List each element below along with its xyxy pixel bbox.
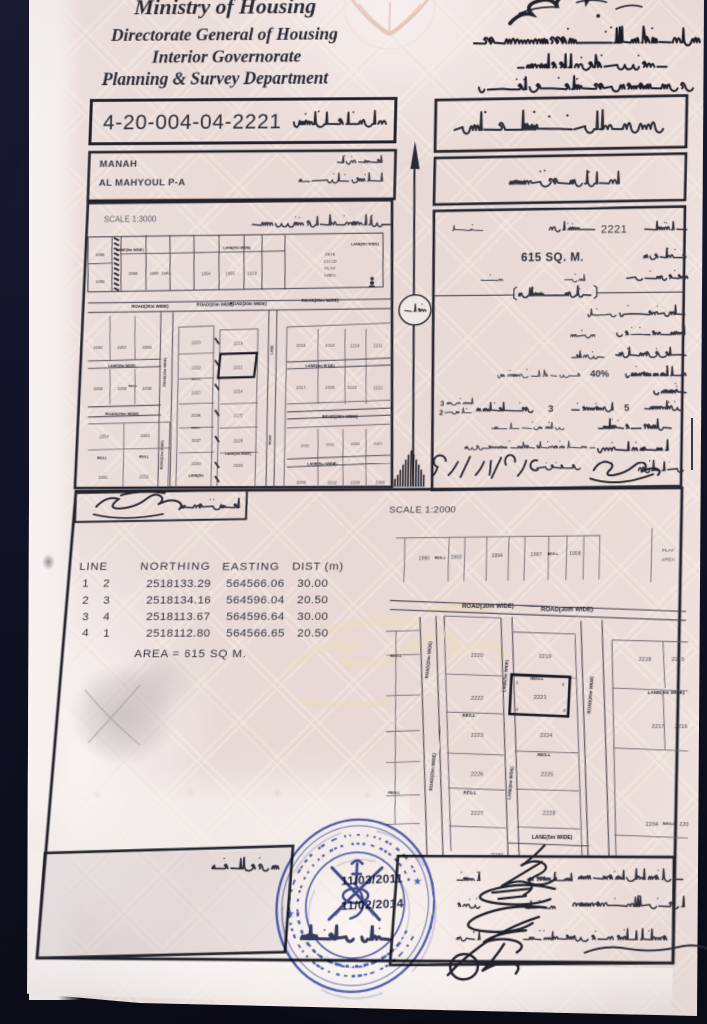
svg-text:2218: 2218 [325,385,335,390]
svg-text:20.50: 20.50 [297,594,329,606]
svg-text:564566.65: 564566.65 [226,627,285,640]
svg-text:2518133.29: 2518133.29 [146,578,212,590]
svg-text:3: 3 [82,611,89,623]
svg-text:1995: 1995 [225,271,235,276]
svg-text:REG.L: REG.L [191,426,200,430]
svg-text:2255: 2255 [142,386,152,391]
svg-text:2051: 2051 [301,443,310,448]
svg-text:1: 1 [82,578,89,590]
svg-text:2203: 2203 [296,480,306,485]
svg-text:SCALE 1:3000: SCALE 1:3000 [104,215,157,224]
svg-text:REG.L: REG.L [139,455,149,459]
svg-text:ROAD: ROAD [268,434,272,445]
svg-text:2213: 2213 [347,385,357,390]
svg-text:4: 4 [103,611,110,623]
svg-text:2220: 2220 [471,653,484,659]
svg-text:2226: 2226 [191,413,201,418]
svg-text:30.00: 30.00 [297,578,329,590]
svg-text:2221: 2221 [233,365,243,370]
svg-text:2230: 2230 [191,461,201,466]
svg-text:REG.L: REG.L [97,456,107,460]
svg-text:2218: 2218 [296,343,306,348]
svg-text:2214: 2214 [350,343,360,348]
svg-text:2211: 2211 [373,343,383,348]
svg-text:LANE(5m WIDE): LANE(5m WIDE) [108,364,136,368]
svg-text:40%: 40% [590,369,610,379]
svg-text:REG.L: REG.L [547,552,558,556]
svg-text:2: 2 [562,682,565,687]
svg-text:LANE(5m WIDE): LANE(5m WIDE) [307,462,337,466]
svg-text:LANE(5m WIDE): LANE(5m WIDE) [223,246,251,250]
svg-text:EASTING: EASTING [222,561,280,573]
svg-text:564596.64: 564596.64 [226,611,285,623]
svg-text:1985: 1985 [95,279,105,284]
svg-text:2252: 2252 [139,474,149,479]
svg-text:PLAY: PLAY [325,266,336,271]
svg-text:REG.L: REG.L [463,790,477,795]
svg-text:2199: 2199 [350,480,360,485]
svg-text:MANAH: MANAH [99,159,137,169]
svg-text:1918: 1918 [247,271,257,276]
svg-text:REG.L: REG.L [462,713,476,718]
svg-text:2224: 2224 [233,389,243,394]
svg-text:2258: 2258 [93,386,103,391]
svg-text:2291: 2291 [326,442,335,447]
svg-text:NORTHING: NORTHING [140,561,212,573]
svg-text:CHILD: CHILD [323,259,336,264]
svg-text:REG.L: REG.L [663,822,677,826]
svg-text:2204: 2204 [646,822,659,829]
svg-text:REG.L: REG.L [537,752,551,757]
svg-text:220: 220 [679,822,689,829]
svg-text:1990: 1990 [149,271,159,276]
svg-text:4: 4 [82,627,89,639]
svg-text:★: ★ [285,907,295,919]
svg-text:AREA: AREA [661,557,674,562]
svg-text:2227: 2227 [191,438,201,443]
svg-text:2518113.67: 2518113.67 [146,611,211,623]
svg-text:3: 3 [563,708,566,713]
svg-text:1990: 1990 [418,556,430,561]
svg-text:4-20-004-04-2221: 4-20-004-04-2221 [103,110,283,134]
svg-text:ROAD(30m WIDE): ROAD(30m WIDE) [541,607,594,613]
svg-text:564566.06: 564566.06 [226,578,285,590]
svg-text:2219: 2219 [539,654,552,660]
svg-text:1986: 1986 [95,252,105,257]
svg-text:2221: 2221 [601,224,628,236]
svg-text:PLAY: PLAY [662,548,674,553]
svg-text:ROAD(20m WIDE): ROAD(20m WIDE) [131,304,169,309]
svg-text:AL MAHYOUL P-A: AL MAHYOUL P-A [99,177,186,188]
svg-text:1: 1 [516,680,519,685]
svg-text:AREA = 615 SQ M.: AREA = 615 SQ M. [134,648,247,661]
svg-text:2226: 2226 [471,772,484,778]
svg-text:2261: 2261 [98,475,108,480]
svg-text:REG.L: REG.L [191,377,200,381]
svg-text:2223: 2223 [471,733,484,739]
svg-text:DIST (m): DIST (m) [292,561,344,573]
svg-text:LANE(5m WIDE): LANE(5m WIDE) [305,364,335,368]
svg-text:564596.04: 564596.04 [226,594,285,606]
svg-text:2: 2 [439,408,443,417]
svg-text:ROAD(12m WIDE): ROAD(12m WIDE) [162,358,167,387]
svg-text:2225: 2225 [541,772,554,778]
svg-text:2175: 2175 [233,413,243,418]
svg-text:Planning & Survey Department: Planning & Survey Department [101,68,330,89]
svg-text:SCALE 1:2000: SCALE 1:2000 [389,505,456,515]
svg-text:2219: 2219 [233,341,243,346]
svg-text:ROAD(20m WIDE): ROAD(20m WIDE) [229,301,267,306]
svg-text:2217: 2217 [296,385,306,390]
svg-text:1994: 1994 [491,553,503,558]
svg-text:2979: 2979 [325,252,335,257]
svg-text:LANE(5m WIDE): LANE(5m WIDE) [116,248,144,252]
svg-text:2253: 2253 [140,433,150,438]
svg-text:2229: 2229 [233,463,243,468]
svg-text:2217: 2217 [652,724,665,730]
svg-text:AREA: AREA [324,273,336,278]
svg-text:1997: 1997 [530,552,542,557]
svg-text:2221: 2221 [533,695,547,701]
svg-text:ROAD(20m WIDE): ROAD(20m WIDE) [301,298,339,303]
svg-text:2228: 2228 [233,438,243,443]
svg-text:REG.L: REG.L [128,384,137,388]
svg-text:3: 3 [103,594,110,606]
svg-text:ROAD(20m WIDE): ROAD(20m WIDE) [424,641,433,679]
svg-text:2215: 2215 [672,657,685,663]
svg-text:★: ★ [413,875,423,887]
svg-text:2197: 2197 [374,441,383,446]
svg-text:2212: 2212 [373,385,383,390]
svg-text:30.00: 30.00 [297,611,329,623]
svg-text:2: 2 [82,594,89,606]
svg-text:1993: 1993 [450,555,462,560]
svg-text:ROAD(20m WIDE): ROAD(20m WIDE) [322,414,358,419]
svg-text:2214: 2214 [325,343,335,348]
svg-text:2259: 2259 [117,386,127,391]
svg-text:2224: 2224 [540,733,553,739]
svg-text:1994: 1994 [201,271,211,276]
svg-text:LANE(5m: LANE(5m [188,474,203,478]
svg-text:2288: 2288 [350,441,360,446]
svg-text:2: 2 [103,578,110,590]
svg-text:2518112.80: 2518112.80 [146,627,211,639]
svg-text:1993: 1993 [161,271,171,276]
svg-text:REG.L: REG.L [390,654,403,658]
svg-text:4: 4 [516,707,519,712]
svg-text:LANE: LANE [270,345,274,355]
svg-text:ROAD(20m WIDE): ROAD(20m WIDE) [105,411,140,416]
svg-text:2518134.16: 2518134.16 [146,594,212,606]
svg-text:2260: 2260 [93,345,103,350]
svg-text:3: 3 [440,399,444,408]
svg-text:2222: 2222 [191,365,201,370]
svg-text:20.50: 20.50 [297,627,329,640]
svg-text:2254: 2254 [99,434,109,439]
svg-text:LANE(5m WIDE): LANE(5m WIDE) [506,766,515,800]
svg-text:2228: 2228 [543,811,556,818]
svg-text:1988: 1988 [128,271,138,276]
svg-text:2220: 2220 [191,340,201,345]
svg-text:2216: 2216 [675,724,688,730]
svg-text:ROAD(30m WIDE): ROAD(30m WIDE) [462,604,514,610]
svg-text:LANE(5m WIDE): LANE(5m WIDE) [532,835,573,841]
svg-text:615 SQ. M.: 615 SQ. M. [521,252,584,265]
svg-text:2222: 2222 [471,696,484,702]
svg-text:2257: 2257 [117,345,127,350]
svg-text:2256: 2256 [142,345,152,350]
svg-text:Interior Governorate: Interior Governorate [151,47,302,67]
svg-text:ROAD(12m WIDE): ROAD(12m WIDE) [159,441,164,470]
svg-text:REG.L: REG.L [434,556,445,560]
svg-text:2218: 2218 [639,657,652,663]
svg-text:LINE: LINE [79,561,109,573]
svg-text:3: 3 [548,404,553,414]
svg-text:2188: 2188 [375,480,385,485]
svg-text:1998: 1998 [569,551,581,556]
svg-text:REG.L: REG.L [388,791,401,795]
svg-text:Directorate General of Housing: Directorate General of Housing [110,24,339,45]
svg-text:2223: 2223 [191,390,201,395]
svg-text:ROAD(20m WIDE): ROAD(20m WIDE) [586,676,595,714]
svg-text:ROAD(20m WIDE): ROAD(20m WIDE) [428,752,437,791]
svg-text:5: 5 [624,403,629,413]
svg-text:LANE(5m WIDE): LANE(5m WIDE) [225,452,251,456]
svg-text:2227: 2227 [471,811,484,818]
svg-text:Ministry of Housing: Ministry of Housing [133,0,317,19]
svg-text:2202: 2202 [327,480,337,485]
svg-text:LANE(5m WIDE): LANE(5m WIDE) [351,242,379,246]
svg-text:1: 1 [103,627,110,639]
